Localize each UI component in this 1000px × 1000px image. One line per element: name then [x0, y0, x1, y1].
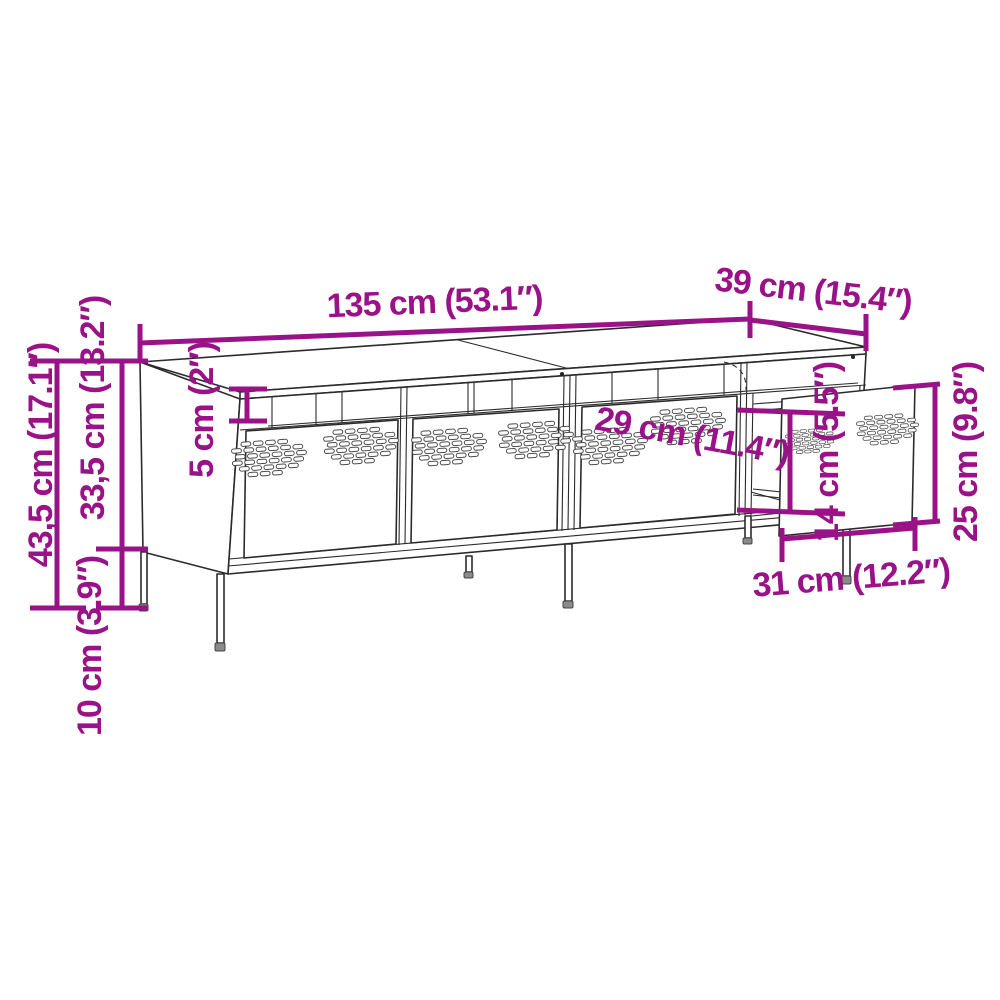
dim-body-height-label: 33,5 cm (13.2″) [74, 296, 112, 520]
leg-foot [743, 538, 752, 544]
leg-mid-rear [464, 556, 473, 578]
dimension-diagram: 135 cm (53.1″) 39 cm (15.4″) 43,5 cm (17… [0, 0, 1000, 1000]
dim-drawer-front-height-label: 25 cm (9.8″) [947, 362, 985, 542]
dim-top-gap-label: 5 cm (2″) [183, 342, 221, 478]
leg-foot [215, 643, 225, 651]
leg-mid-front [563, 544, 573, 608]
dim-total-height-label: 43,5 cm (17.1″) [22, 343, 60, 567]
leg-front-left [215, 574, 225, 651]
leg-rear-left [139, 552, 148, 611]
dim-depth-label: 39 cm (15.4″) [713, 260, 914, 321]
leg-foot [563, 601, 573, 608]
leg-rear-right [743, 516, 752, 544]
dim-width-label: 135 cm (53.1″) [326, 279, 543, 326]
door-1 [231, 420, 400, 558]
diagram-canvas: 135 cm (53.1″) 39 cm (15.4″) 43,5 cm (17… [0, 0, 1000, 1000]
dim-drawer-inner-height-label: 14 cm (5.5″) [808, 362, 846, 542]
leg-foot [464, 572, 473, 578]
hinge-dot [851, 355, 855, 359]
dim-drawer-front-width: 31 cm (12.2″) [751, 517, 951, 605]
door-2 [411, 409, 575, 543]
dim-leg-height-label: 10 cm (3.9″) [71, 556, 109, 736]
hinge-dot [560, 372, 564, 376]
cabinet-line-art [139, 319, 920, 651]
